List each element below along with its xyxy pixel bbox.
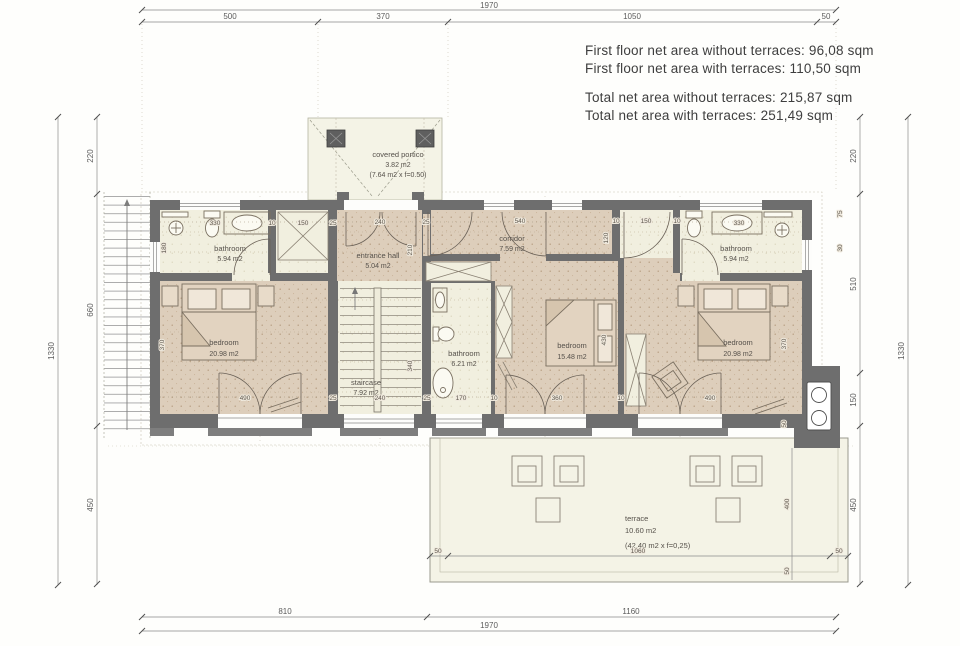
room-label-bedroom-left: bedroom bbox=[209, 338, 239, 347]
room-area: 5.04 m2 bbox=[365, 263, 390, 270]
dim-label: 50 bbox=[835, 548, 843, 555]
dim-label: 150 bbox=[298, 220, 309, 227]
room-label-bedroom-right: bedroom bbox=[723, 338, 753, 347]
room-label-bedroom-middle: bedroom bbox=[557, 341, 587, 350]
room-label-staircase: staircase bbox=[351, 378, 381, 387]
dim-label: 500 bbox=[223, 12, 237, 21]
dim-label: 120 bbox=[603, 232, 610, 243]
dim-label: 1160 bbox=[622, 607, 640, 616]
dim-label-left-overall: 1330 bbox=[47, 342, 56, 360]
dim-label: 10 bbox=[673, 218, 681, 225]
toilet bbox=[438, 327, 454, 341]
terrace-label: terrace bbox=[625, 514, 648, 523]
dim-label: 210 bbox=[407, 244, 414, 255]
dim-label: 360 bbox=[552, 395, 563, 402]
dim-label: 810 bbox=[278, 607, 292, 616]
portico-column bbox=[416, 130, 434, 147]
room-area: 15.48 m2 bbox=[557, 354, 586, 361]
dim-label: 660 bbox=[86, 303, 95, 317]
door-gap bbox=[232, 273, 270, 281]
shelf bbox=[162, 212, 188, 217]
nightstand bbox=[678, 286, 694, 306]
terrace: terrace 10.60 m2 (42.40 m2 x f=0,25) 50 … bbox=[427, 438, 851, 582]
room-label-corridor: corridor bbox=[499, 234, 525, 243]
dim-label: 540 bbox=[515, 218, 526, 225]
dim-label: 170 bbox=[456, 395, 467, 402]
dim-label: 370 bbox=[159, 339, 166, 350]
summary-total-without: Total net area without terraces: 215,87 … bbox=[585, 89, 915, 107]
dim-label: 240 bbox=[375, 395, 386, 402]
wardrobe-x bbox=[626, 334, 646, 406]
window-sills bbox=[150, 428, 728, 436]
dim-label: 490 bbox=[240, 395, 251, 402]
dim-label: 240 bbox=[375, 219, 386, 226]
dim-label: 330 bbox=[210, 220, 221, 227]
room-label-entrance-hall: entrance hall bbox=[357, 251, 400, 260]
dim-label: 30 bbox=[837, 244, 844, 252]
portico-area: 3.82 m2 bbox=[385, 162, 410, 169]
room-area: 5.94 m2 bbox=[723, 256, 748, 263]
floor-plan-page: terrace 10.60 m2 (42.40 m2 x f=0,25) 50 … bbox=[0, 0, 960, 646]
room-label-bathroom-middle: bathroom bbox=[448, 349, 480, 358]
room-area: 7.59 m2 bbox=[499, 246, 524, 253]
dim-label: 75 bbox=[837, 210, 844, 218]
dim-label: 370 bbox=[781, 338, 788, 349]
toilet-tank bbox=[686, 211, 702, 218]
shelf bbox=[764, 212, 792, 217]
portico-label: covered portico bbox=[372, 150, 423, 159]
portico-note: (7.64 m2 x f=0.50) bbox=[369, 172, 426, 179]
room-area: 20.98 m2 bbox=[723, 351, 752, 358]
building: bathroom 5.94 m2 entrance hall 5.04 m2 c… bbox=[150, 192, 844, 448]
nightstand bbox=[162, 286, 178, 306]
pillow bbox=[188, 289, 216, 309]
dim-label: 25 bbox=[422, 219, 430, 226]
exterior-stair bbox=[104, 192, 150, 440]
toilet-tank bbox=[204, 211, 220, 218]
summary-first-with: First floor net area with terraces: 110,… bbox=[585, 60, 915, 78]
dim-label: 220 bbox=[849, 149, 858, 163]
dim-label: 50 bbox=[781, 420, 788, 428]
dim-label: 10 bbox=[617, 395, 625, 402]
dim-label: 1050 bbox=[623, 12, 641, 21]
dim-label: 510 bbox=[849, 277, 858, 291]
room-area: 6.21 m2 bbox=[451, 361, 476, 368]
bathtub bbox=[433, 368, 453, 398]
dim-label-right-overall: 1330 bbox=[897, 342, 906, 360]
dim-label: 10 bbox=[268, 220, 276, 227]
dim-label-top-overall: 1970 bbox=[480, 1, 498, 10]
dim-label: 220 bbox=[86, 149, 95, 163]
dim-label: 25 bbox=[423, 395, 431, 402]
dim-label: 150 bbox=[641, 218, 652, 225]
dim-label: 10 bbox=[612, 218, 620, 225]
room-area: 20.98 m2 bbox=[209, 351, 238, 358]
portico-column bbox=[327, 130, 345, 147]
dim-label: 490 bbox=[705, 395, 716, 402]
summary-total-with: Total net area with terraces: 251,49 sqm bbox=[585, 107, 915, 125]
dim-label: 400 bbox=[784, 498, 791, 509]
dim-label: 450 bbox=[849, 498, 858, 512]
dim-label: 370 bbox=[376, 12, 390, 21]
basin bbox=[232, 215, 262, 231]
pillow bbox=[598, 304, 612, 330]
dim-label: 50 bbox=[784, 567, 791, 575]
nightstand bbox=[258, 286, 274, 306]
covered-portico: covered portico 3.82 m2 (7.64 m2 x f=0.5… bbox=[308, 118, 442, 200]
dim-label: 50 bbox=[822, 12, 831, 21]
dim-label-bottom-overall: 1970 bbox=[480, 621, 498, 630]
chimney-flues bbox=[807, 382, 831, 430]
wardrobe-x bbox=[426, 262, 491, 281]
room-area: 5.94 m2 bbox=[217, 256, 242, 263]
area-summary: First floor net area without terraces: 9… bbox=[585, 42, 915, 125]
dim-label: 340 bbox=[407, 360, 414, 371]
pillow bbox=[704, 289, 732, 309]
dim-label: 180 bbox=[161, 242, 168, 253]
nightstand bbox=[772, 286, 788, 306]
dim-label: 50 bbox=[434, 548, 442, 555]
interior-staircase bbox=[340, 287, 421, 412]
room-label-bathroom-left: bathroom bbox=[214, 244, 246, 253]
dim-label: 10 bbox=[490, 395, 498, 402]
dim-label: 450 bbox=[86, 498, 95, 512]
pillow bbox=[738, 289, 766, 309]
dim-label: 25 bbox=[329, 395, 337, 402]
door-gap bbox=[682, 273, 720, 281]
dimension-chain-left bbox=[55, 114, 100, 588]
terrace-area: 10.60 m2 bbox=[625, 526, 656, 535]
toilet bbox=[688, 219, 701, 237]
dim-label: 330 bbox=[734, 220, 745, 227]
pillow bbox=[222, 289, 250, 309]
summary-first-without: First floor net area without terraces: 9… bbox=[585, 42, 915, 60]
dim-label: 150 bbox=[849, 393, 858, 407]
dim-label: 430 bbox=[601, 334, 608, 345]
dim-label: 1060 bbox=[631, 548, 646, 555]
wardrobe-x bbox=[496, 286, 512, 358]
dim-label: 25 bbox=[329, 220, 337, 227]
room-label-bathroom-right: bathroom bbox=[720, 244, 752, 253]
